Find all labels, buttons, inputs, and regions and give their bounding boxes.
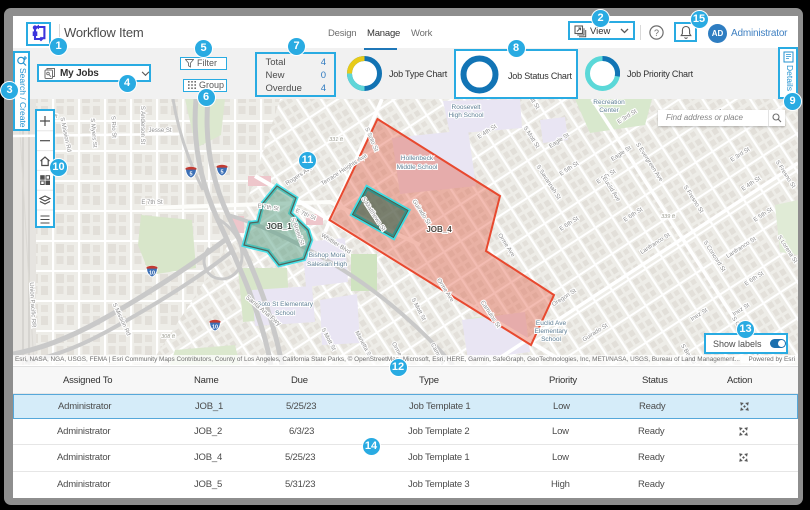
svg-text:Soto St Elementary: Soto St Elementary xyxy=(257,301,314,308)
svg-text:Euclid Ave: Euclid Ave xyxy=(536,320,567,327)
svg-text:Roosevelt: Roosevelt xyxy=(452,104,481,111)
svg-text:Elementary: Elementary xyxy=(535,328,569,335)
svg-text:5: 5 xyxy=(220,170,223,176)
svg-text:339 ft: 339 ft xyxy=(661,214,675,220)
svg-text:School: School xyxy=(541,336,561,343)
svg-text:S Anderson St: S Anderson St xyxy=(139,106,145,145)
svg-text:5: 5 xyxy=(189,172,192,178)
svg-text:E 7th St: E 7th St xyxy=(141,200,163,206)
svg-text:Salesian High: Salesian High xyxy=(307,261,347,268)
svg-text:331 ft: 331 ft xyxy=(329,137,343,143)
svg-text:10: 10 xyxy=(149,271,155,277)
svg-text:S Rio St: S Rio St xyxy=(109,116,116,139)
svg-text:Hollenbeck: Hollenbeck xyxy=(401,155,434,162)
svg-text:School: School xyxy=(275,310,295,317)
svg-text:308 ft: 308 ft xyxy=(161,334,175,340)
svg-text:Recreation: Recreation xyxy=(593,99,625,106)
svg-text:JOB_4: JOB_4 xyxy=(426,225,452,234)
svg-text:10: 10 xyxy=(212,325,218,331)
svg-text:Center: Center xyxy=(599,107,619,114)
svg-text:Jesse St: Jesse St xyxy=(148,128,171,134)
svg-text:?: ? xyxy=(654,28,659,38)
svg-text:Bishop Mora: Bishop Mora xyxy=(309,252,346,259)
svg-text:JOB_1: JOB_1 xyxy=(266,222,292,231)
svg-text:High School: High School xyxy=(448,112,484,119)
svg-text:Middle School: Middle School xyxy=(397,164,438,171)
